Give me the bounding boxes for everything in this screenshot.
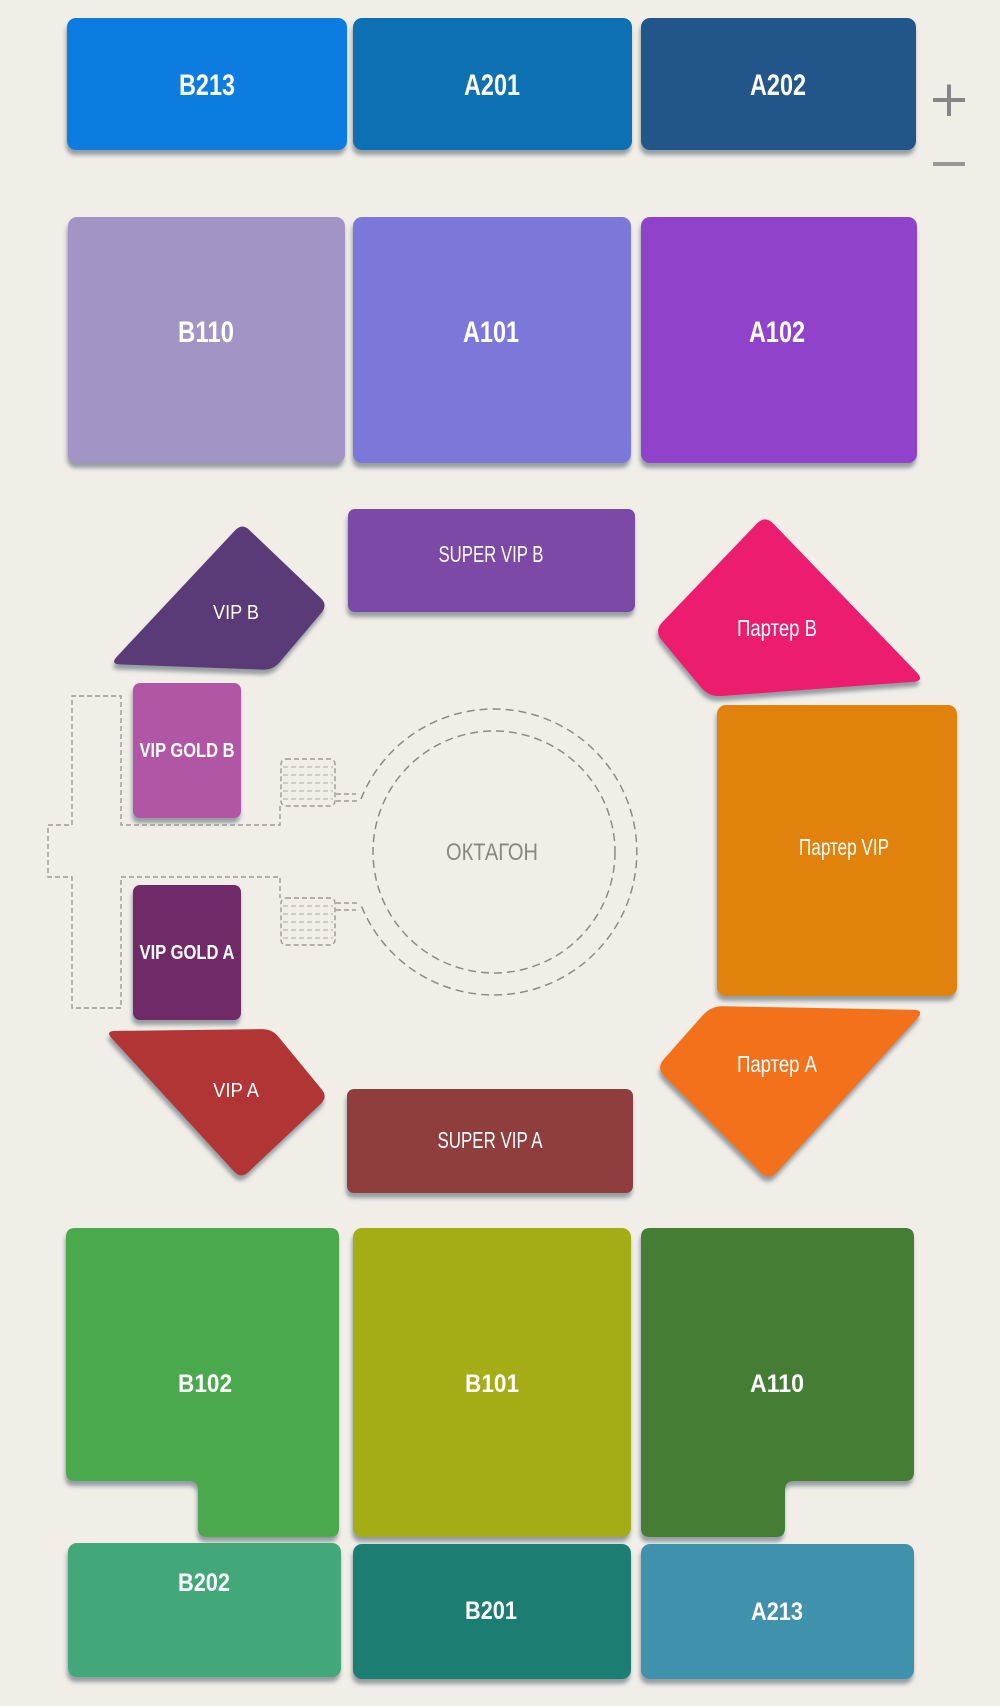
svg-text:A202: A202: [750, 69, 806, 102]
svg-text:A201: A201: [464, 69, 520, 102]
svg-text:B110: B110: [178, 316, 234, 349]
svg-text:VIP B: VIP B: [213, 602, 259, 624]
svg-text:Партер B: Партер B: [737, 615, 817, 641]
svg-text:B202: B202: [178, 1569, 230, 1597]
svg-text:VIP GOLD A: VIP GOLD A: [140, 942, 235, 964]
svg-text:VIP GOLD B: VIP GOLD B: [140, 740, 235, 762]
svg-text:A213: A213: [751, 1598, 803, 1626]
svg-text:Партер A: Партер A: [737, 1051, 818, 1077]
svg-text:SUPER VIP B: SUPER VIP B: [439, 541, 544, 567]
svg-text:A101: A101: [463, 316, 519, 349]
svg-text:A102: A102: [749, 316, 805, 349]
svg-text:VIP A: VIP A: [213, 1080, 260, 1102]
svg-text:B201: B201: [465, 1597, 517, 1625]
svg-text:Партер VIP: Партер VIP: [799, 834, 889, 860]
svg-text:ОКТАГОН: ОКТАГОН: [446, 839, 538, 866]
svg-text:B101: B101: [465, 1370, 519, 1398]
svg-text:SUPER VIP A: SUPER VIP A: [438, 1127, 543, 1153]
svg-text:A110: A110: [750, 1370, 804, 1398]
svg-text:B102: B102: [178, 1370, 232, 1398]
svg-text:B213: B213: [179, 69, 235, 102]
